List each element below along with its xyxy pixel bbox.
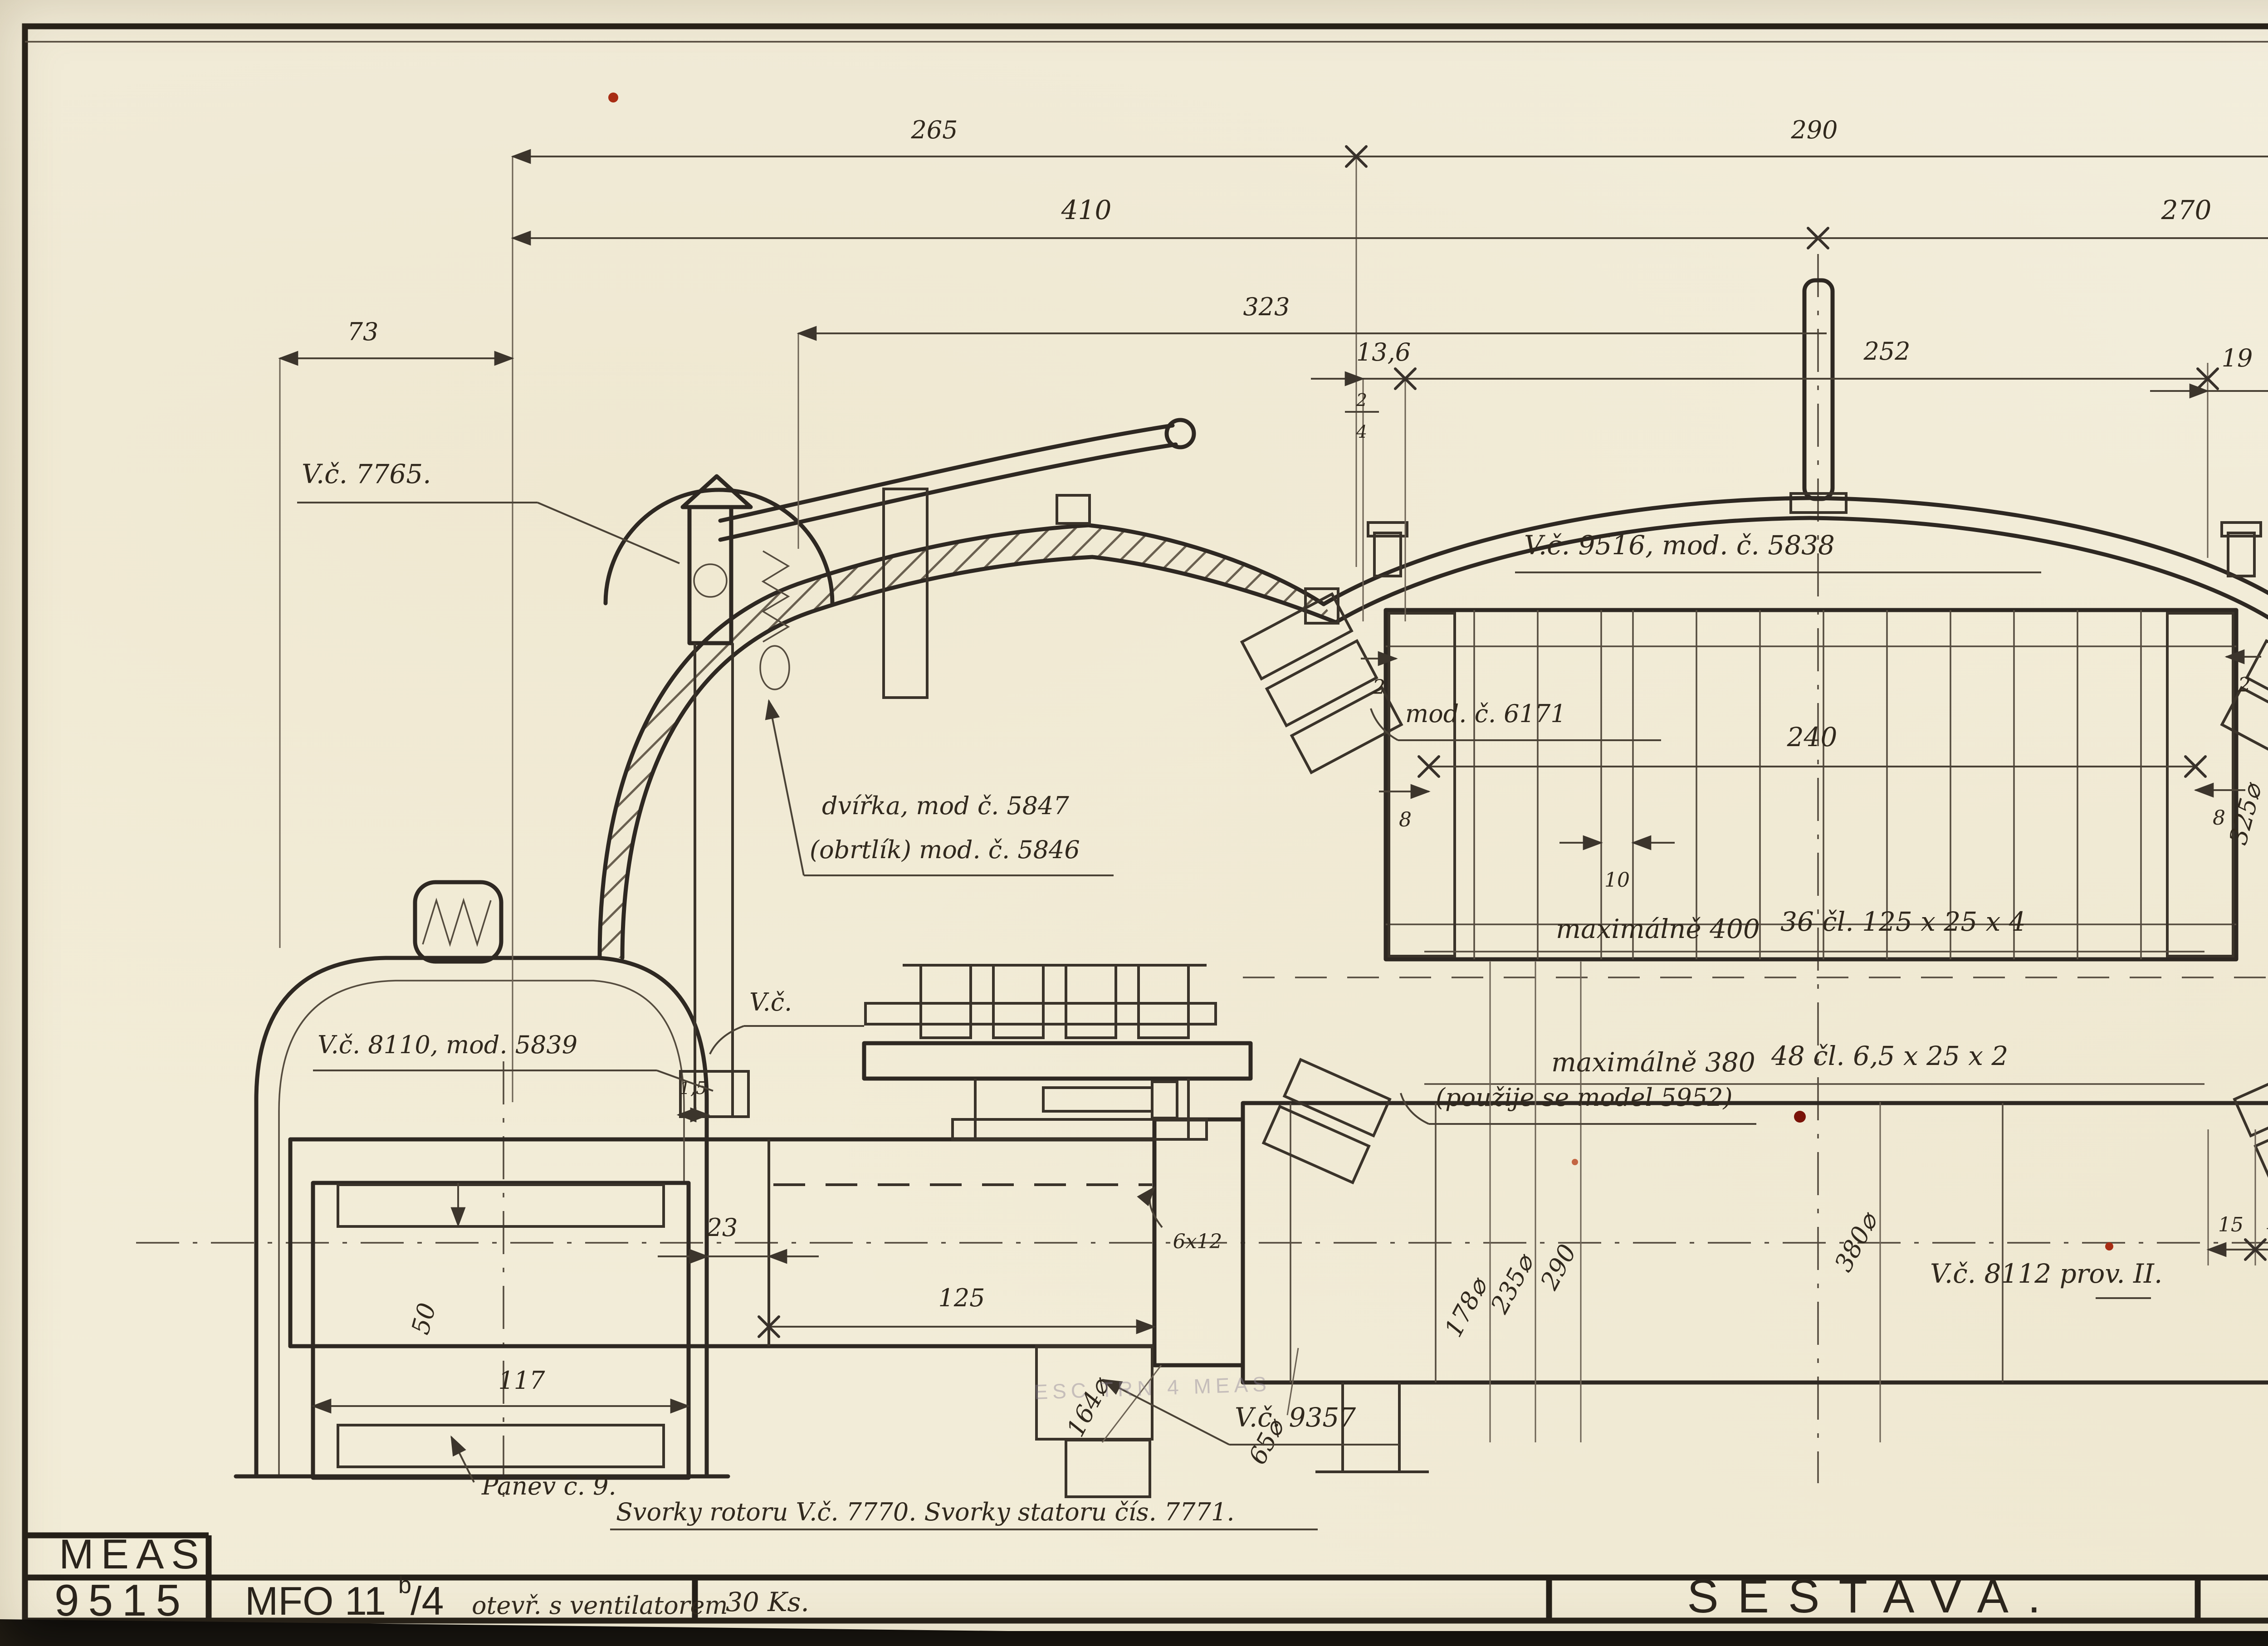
label-9516: V.č. 9516, mod. č. 5838 [1524, 530, 1835, 561]
drawing-number: 9515 [54, 1575, 190, 1625]
blueprint-sheet: 265 290 125 163 410 270 323 73 13,6 252 … [0, 0, 2268, 1646]
coil-end-right-lower [2234, 1060, 2268, 1182]
dim-23: 23 [706, 1213, 738, 1242]
dim-325: 325⌀ [2224, 779, 2268, 848]
label-vc-small: V.č. [749, 988, 792, 1016]
sheet-title: SESTAVA. [1687, 1570, 2059, 1623]
dim-252: 252 [1863, 337, 1910, 366]
label-7765: V.č. 7765. [302, 459, 431, 489]
label-48cl: 48 čl. 6,5 x 25 x 2 [1771, 1040, 2008, 1071]
rocker-assembly [606, 420, 1194, 1117]
brush-bracket [884, 489, 927, 698]
label-dvirka: dvířka, mod č. 5847 [822, 791, 1069, 820]
dim-10: 10 [1604, 869, 1630, 892]
dim-15: 15 [2218, 1213, 2244, 1236]
label-model5952: (použije se model 5952) [1436, 1083, 1733, 1112]
label-36cl: 36 čl. 125 x 25 x 4 [1780, 906, 2026, 937]
centerlines [136, 254, 2268, 1497]
title-block: MEAS 9515 MFO 11 b /4 otevř. s ventilato… [25, 1531, 2268, 1625]
dim-8r: 8 [2213, 806, 2225, 830]
dim-50l: 50 [406, 1300, 442, 1338]
drawing-canvas: 265 290 125 163 410 270 323 73 13,6 252 … [0, 0, 2268, 1646]
label-obrtlik: (obrtlík) mod. č. 5846 [810, 835, 1080, 864]
dim-380: 380⌀ [1829, 1207, 1884, 1276]
dim-290: 290 [1790, 116, 1838, 144]
faint-stamp: ESC TRN 4 MEAS [1034, 1372, 1271, 1404]
dim-290b: 290 [1535, 1240, 1582, 1294]
dim-6x12l: 6x12 [1173, 1230, 1222, 1253]
extension-lines [280, 156, 2268, 1442]
dim-270: 270 [2161, 195, 2212, 225]
dim-410: 410 [1061, 195, 1112, 225]
dim-323: 323 [1243, 293, 1290, 321]
dim-240: 240 [1787, 722, 1838, 752]
dim-125b: 125 [938, 1284, 985, 1312]
oiler-spring-left [423, 900, 491, 944]
designation-suffix: /4 [411, 1578, 444, 1623]
designation-note: otevř. s ventilatorem [472, 1591, 728, 1620]
dim-frac-top: 2 [1356, 390, 1367, 410]
coil-end-left-lower [1264, 1060, 1390, 1182]
dim-8l: 8 [1399, 808, 1412, 831]
dim-2l: 2 [1372, 676, 1385, 699]
designation: MFO 11 [245, 1578, 386, 1623]
dim-235: 235⌀ [1485, 1249, 1540, 1319]
dim-265: 265 [910, 116, 958, 144]
designation-sup: b [398, 1572, 411, 1598]
label-9357: V.č. 9357 [1235, 1402, 1356, 1433]
dim-19: 19 [2222, 344, 2253, 372]
label-6171: mod. č. 6171 [1405, 699, 1566, 728]
left-bearing-pedestal [236, 882, 728, 1478]
label-max400: maximálně 400 [1556, 913, 1760, 944]
annotations: ESC TRN 4 MEAS Svorky rotoru V.č. 7770. … [610, 1372, 1318, 1529]
company-name: MEAS [59, 1531, 206, 1578]
age-spots [608, 93, 2268, 1563]
lever-arm [720, 425, 1173, 521]
label-8112: V.č. 8112 prov. II. [1930, 1258, 2162, 1289]
brush-gear [864, 965, 1251, 1139]
dim-1-5: 1,5 [679, 1078, 707, 1098]
sheet-border [0, 26, 2268, 1646]
dim-117: 117 [498, 1366, 545, 1395]
label-8110: V.č. 8110, mod. 5839 [318, 1031, 577, 1059]
quantity: 30 Ks. [726, 1587, 809, 1617]
dim-14: 14 [2265, 1211, 2268, 1234]
dim-178: 178⌀ [1439, 1272, 1494, 1342]
label-max380: maximálně 380 [1551, 1047, 1755, 1078]
label-panev: Pánev č. 9. [481, 1472, 616, 1500]
dim-13-6: 13,6 [1356, 338, 1411, 366]
dim-2r: 2 [2238, 674, 2251, 697]
dim-73: 73 [347, 317, 379, 346]
dim-frac-bot: 4 [1356, 422, 1367, 442]
frame-left-sweep [600, 525, 1336, 958]
bottom-note: Svorky rotoru V.č. 7770. Svorky statoru … [616, 1498, 1235, 1526]
